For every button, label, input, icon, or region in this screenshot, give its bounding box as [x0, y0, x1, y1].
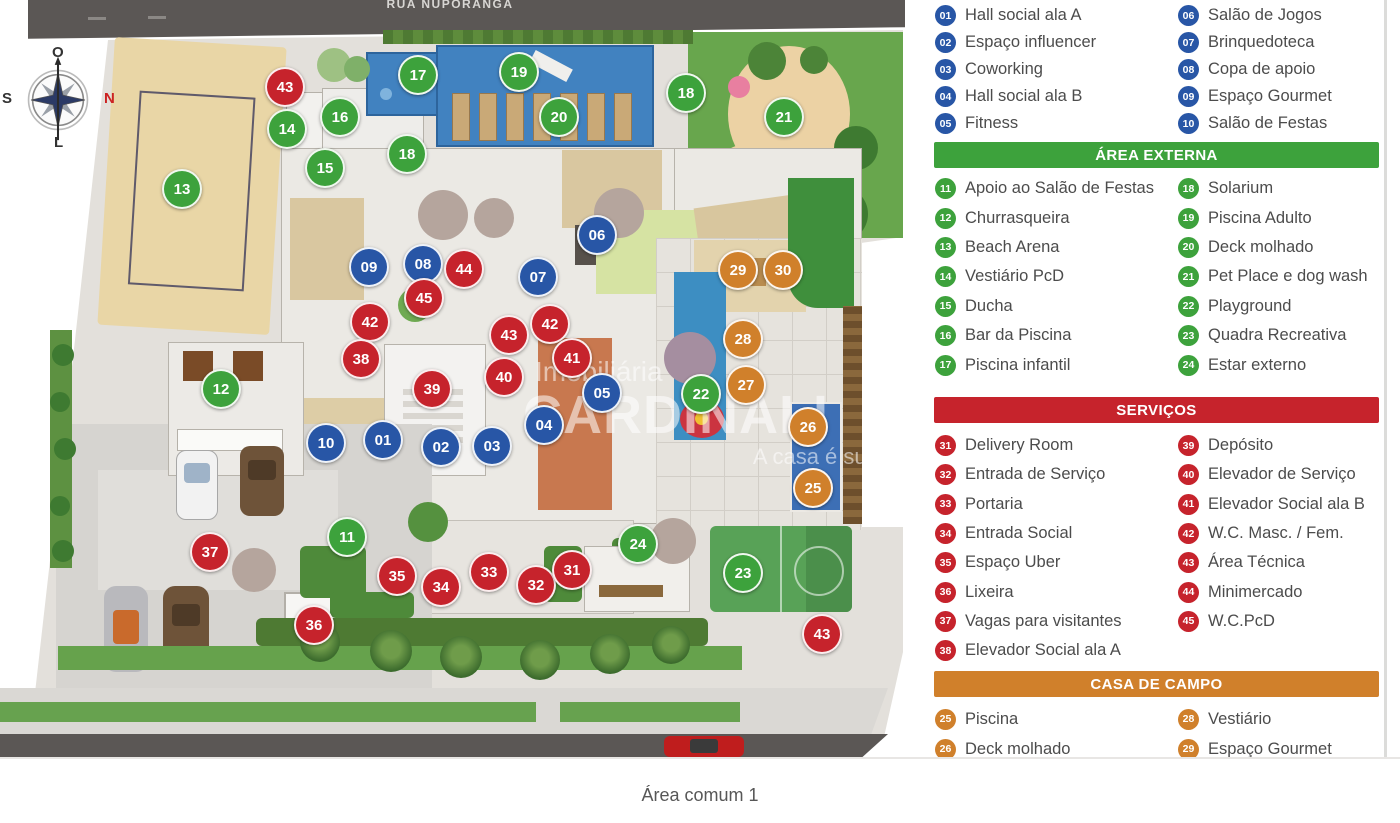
- legend-badge: 11: [935, 178, 956, 199]
- legend-label: Deck molhado: [1208, 238, 1313, 257]
- legend-item: 02 Espaço influencer: [935, 29, 1096, 56]
- legend-label: Hall social ala B: [965, 87, 1082, 106]
- legend-badge: 09: [1178, 86, 1199, 107]
- legend-badge: 40: [1178, 464, 1199, 485]
- section-header-area-externa: ÁREA EXTERNA: [934, 142, 1379, 168]
- legend-badge: 26: [935, 739, 956, 758]
- plan-marker: 19: [499, 52, 539, 92]
- plan-marker: 44: [444, 249, 484, 289]
- legend-label: Coworking: [965, 60, 1043, 79]
- legend-item: 45 W.C.PcD: [1178, 607, 1365, 636]
- legend-label: Estar externo: [1208, 356, 1306, 375]
- legend-badge: 22: [1178, 296, 1199, 317]
- legend-item: 14 Vestiário PcD: [935, 262, 1154, 291]
- image-caption: Área comum 1: [0, 759, 1400, 806]
- legend-badge: 35: [935, 552, 956, 573]
- legend-badge: 06: [1178, 5, 1199, 26]
- plan-marker: 14: [267, 109, 307, 149]
- legend-badge: 42: [1178, 523, 1199, 544]
- plan-marker: 28: [723, 319, 763, 359]
- plan-marker: 27: [726, 365, 766, 405]
- legend-badge: 08: [1178, 59, 1199, 80]
- legend-item: 26 Deck molhado: [935, 734, 1070, 757]
- plan-marker: 26: [788, 407, 828, 447]
- legend-social-left: 01 Hall social ala A 02 Espaço influence…: [935, 2, 1096, 137]
- section-header-servicos: SERVIÇOS: [934, 397, 1379, 423]
- plan-marker: 04: [524, 405, 564, 445]
- plan-marker: 41: [552, 338, 592, 378]
- legend-label: Apoio ao Salão de Festas: [965, 179, 1154, 198]
- legend-label: Hall social ala A: [965, 6, 1081, 25]
- legend-label: Entrada de Serviço: [965, 465, 1105, 484]
- site-plan-image: RUA NUPORANGA O S N L: [0, 0, 1400, 757]
- plan-marker: 12: [201, 369, 241, 409]
- legend-label: Brinquedoteca: [1208, 33, 1314, 52]
- legend-servicos-right: 39 Depósito 40 Elevador de Serviço 41 El…: [1178, 431, 1365, 636]
- legend-item: 34 Entrada Social: [935, 519, 1122, 548]
- legend-label: Bar da Piscina: [965, 326, 1071, 345]
- legend-badge: 15: [935, 296, 956, 317]
- plan-marker: 40: [484, 357, 524, 397]
- plan-marker: 34: [421, 567, 461, 607]
- plan-marker: 45: [404, 278, 444, 318]
- legend-panel: 01 Hall social ala A 02 Espaço influence…: [930, 0, 1386, 757]
- legend-badge: 03: [935, 59, 956, 80]
- legend-externa-left: 11 Apoio ao Salão de Festas 12 Churrasqu…: [935, 174, 1154, 380]
- legend-label: Elevador Social ala B: [1208, 495, 1365, 514]
- plan-marker: 42: [530, 304, 570, 344]
- legend-item: 19 Piscina Adulto: [1178, 203, 1368, 232]
- legend-badge: 33: [935, 494, 956, 515]
- legend-casa-right: 28 Vestiário 29 Espaço Gourmet: [1178, 704, 1332, 757]
- legend-badge: 31: [935, 435, 956, 456]
- legend-item: 42 W.C. Masc. / Fem.: [1178, 519, 1365, 548]
- legend-badge: 16: [935, 325, 956, 346]
- site-plan: RUA NUPORANGA O S N L: [0, 0, 930, 757]
- legend-badge: 28: [1178, 709, 1199, 730]
- legend-item: 20 Deck molhado: [1178, 233, 1368, 262]
- legend-label: Pet Place e dog wash: [1208, 267, 1368, 286]
- legend-label: W.C. Masc. / Fem.: [1208, 524, 1344, 543]
- plan-marker: 02: [421, 427, 461, 467]
- legend-badge: 01: [935, 5, 956, 26]
- legend-item: 28 Vestiário: [1178, 704, 1332, 734]
- legend-label: Delivery Room: [965, 436, 1073, 455]
- legend-badge: 05: [935, 113, 956, 134]
- legend-badge: 45: [1178, 611, 1199, 632]
- legend-label: Fitness: [965, 114, 1018, 133]
- legend-label: Depósito: [1208, 436, 1273, 455]
- legend-label: Lixeira: [965, 583, 1014, 602]
- legend-item: 36 Lixeira: [935, 577, 1122, 606]
- plan-marker: 42: [350, 302, 390, 342]
- legend-badge: 21: [1178, 266, 1199, 287]
- legend-badge: 37: [935, 611, 956, 632]
- plan-marker: 30: [763, 250, 803, 290]
- legend-label: Solarium: [1208, 179, 1273, 198]
- plan-marker: 07: [518, 257, 558, 297]
- plan-marker: 39: [412, 369, 452, 409]
- plan-marker: 43: [489, 315, 529, 355]
- legend-label: Vestiário PcD: [965, 267, 1064, 286]
- panel-edge-line: [1384, 0, 1387, 757]
- legend-badge: 23: [1178, 325, 1199, 346]
- caption-band: Área comum 1: [0, 757, 1400, 823]
- legend-item: 21 Pet Place e dog wash: [1178, 262, 1368, 291]
- plan-marker: 09: [349, 247, 389, 287]
- legend-item: 01 Hall social ala A: [935, 2, 1096, 29]
- plan-marker: 01: [363, 420, 403, 460]
- plan-marker: 18: [666, 73, 706, 113]
- legend-badge: 18: [1178, 178, 1199, 199]
- legend-label: Entrada Social: [965, 524, 1072, 543]
- legend-badge: 29: [1178, 739, 1199, 758]
- legend-item: 38 Elevador Social ala A: [935, 636, 1122, 665]
- legend-casa-left: 25 Piscina 26 Deck molhado: [935, 704, 1070, 757]
- legend-item: 44 Minimercado: [1178, 577, 1365, 606]
- plan-marker: 43: [265, 67, 305, 107]
- plan-marker: 37: [190, 532, 230, 572]
- legend-social-right: 06 Salão de Jogos 07 Brinquedoteca 08 Co…: [1178, 2, 1332, 137]
- legend-label: Salão de Festas: [1208, 114, 1327, 133]
- plan-marker: 13: [162, 169, 202, 209]
- plan-marker: 33: [469, 552, 509, 592]
- legend-item: 03 Coworking: [935, 56, 1096, 83]
- legend-label: Espaço influencer: [965, 33, 1096, 52]
- legend-item: 22 Playground: [1178, 292, 1368, 321]
- legend-item: 10 Salão de Festas: [1178, 110, 1332, 137]
- legend-item: 24 Estar externo: [1178, 350, 1368, 379]
- legend-item: 08 Copa de apoio: [1178, 56, 1332, 83]
- legend-badge: 25: [935, 709, 956, 730]
- legend-badge: 24: [1178, 355, 1199, 376]
- plan-marker: 17: [398, 55, 438, 95]
- legend-item: 05 Fitness: [935, 110, 1096, 137]
- legend-badge: 17: [935, 355, 956, 376]
- legend-label: Área Técnica: [1208, 553, 1305, 572]
- legend-item: 41 Elevador Social ala B: [1178, 490, 1365, 519]
- legend-label: Ducha: [965, 297, 1013, 316]
- plan-marker: 31: [552, 550, 592, 590]
- legend-label: Elevador Social ala A: [965, 641, 1121, 660]
- legend-label: Salão de Jogos: [1208, 6, 1322, 25]
- legend-item: 18 Solarium: [1178, 174, 1368, 203]
- legend-badge: 44: [1178, 582, 1199, 603]
- legend-badge: 02: [935, 32, 956, 53]
- legend-label: Quadra Recreativa: [1208, 326, 1347, 345]
- legend-item: 07 Brinquedoteca: [1178, 29, 1332, 56]
- legend-item: 15 Ducha: [935, 292, 1154, 321]
- legend-item: 37 Vagas para visitantes: [935, 607, 1122, 636]
- legend-badge: 14: [935, 266, 956, 287]
- plan-marker: 23: [723, 553, 763, 593]
- legend-item: 40 Elevador de Serviço: [1178, 460, 1365, 489]
- legend-badge: 41: [1178, 494, 1199, 515]
- legend-label: Minimercado: [1208, 583, 1302, 602]
- screenshot: RUA NUPORANGA O S N L: [0, 0, 1400, 823]
- legend-badge: 12: [935, 208, 956, 229]
- legend-item: 06 Salão de Jogos: [1178, 2, 1332, 29]
- section-header-casa-de-campo: CASA DE CAMPO: [934, 671, 1379, 697]
- legend-badge: 07: [1178, 32, 1199, 53]
- plan-marker: 18: [387, 134, 427, 174]
- plan-marker: 03: [472, 426, 512, 466]
- legend-item: 17 Piscina infantil: [935, 350, 1154, 379]
- legend-label: Piscina: [965, 710, 1018, 729]
- plan-marker: 05: [582, 373, 622, 413]
- legend-label: Piscina Adulto: [1208, 209, 1312, 228]
- legend-badge: 38: [935, 640, 956, 661]
- plan-marker: 36: [294, 605, 334, 645]
- legend-badge: 32: [935, 464, 956, 485]
- plan-marker: 35: [377, 556, 417, 596]
- legend-item: 12 Churrasqueira: [935, 203, 1154, 232]
- legend-item: 43 Área Técnica: [1178, 548, 1365, 577]
- legend-badge: 19: [1178, 208, 1199, 229]
- legend-badge: 36: [935, 582, 956, 603]
- legend-item: 25 Piscina: [935, 704, 1070, 734]
- legend-badge: 20: [1178, 237, 1199, 258]
- plan-marker: 10: [306, 423, 346, 463]
- legend-label: Deck molhado: [965, 740, 1070, 758]
- plan-marker: 32: [516, 565, 556, 605]
- legend-item: 13 Beach Arena: [935, 233, 1154, 262]
- legend-item: 11 Apoio ao Salão de Festas: [935, 174, 1154, 203]
- legend-badge: 13: [935, 237, 956, 258]
- legend-label: Vestiário: [1208, 710, 1271, 729]
- legend-badge: 34: [935, 523, 956, 544]
- legend-label: Beach Arena: [965, 238, 1060, 257]
- legend-item: 04 Hall social ala B: [935, 83, 1096, 110]
- plan-marker: 43: [802, 614, 842, 654]
- legend-item: 29 Espaço Gourmet: [1178, 734, 1332, 757]
- plan-marker: 06: [577, 215, 617, 255]
- plan-marker: 21: [764, 97, 804, 137]
- legend-label: Portaria: [965, 495, 1023, 514]
- legend-item: 09 Espaço Gourmet: [1178, 83, 1332, 110]
- plan-marker: 22: [681, 374, 721, 414]
- legend-externa-right: 18 Solarium 19 Piscina Adulto 20 Deck mo…: [1178, 174, 1368, 380]
- plan-marker: 20: [539, 97, 579, 137]
- legend-label: Playground: [1208, 297, 1291, 316]
- legend-item: 16 Bar da Piscina: [935, 321, 1154, 350]
- legend-label: Elevador de Serviço: [1208, 465, 1356, 484]
- plan-marker: 16: [320, 97, 360, 137]
- legend-item: 32 Entrada de Serviço: [935, 460, 1122, 489]
- legend-badge: 43: [1178, 552, 1199, 573]
- plan-marker: 11: [327, 517, 367, 557]
- legend-item: 23 Quadra Recreativa: [1178, 321, 1368, 350]
- legend-badge: 39: [1178, 435, 1199, 456]
- plan-marker: 24: [618, 524, 658, 564]
- legend-label: Vagas para visitantes: [965, 612, 1122, 631]
- legend-label: Espaço Gourmet: [1208, 87, 1332, 106]
- legend-label: Espaço Uber: [965, 553, 1060, 572]
- plan-marker: 38: [341, 339, 381, 379]
- legend-label: W.C.PcD: [1208, 612, 1275, 631]
- legend-item: 31 Delivery Room: [935, 431, 1122, 460]
- plan-marker: 29: [718, 250, 758, 290]
- legend-label: Copa de apoio: [1208, 60, 1315, 79]
- legend-badge: 10: [1178, 113, 1199, 134]
- legend-item: 35 Espaço Uber: [935, 548, 1122, 577]
- legend-badge: 04: [935, 86, 956, 107]
- legend-label: Churrasqueira: [965, 209, 1070, 228]
- legend-item: 33 Portaria: [935, 490, 1122, 519]
- plan-marker: 25: [793, 468, 833, 508]
- legend-label: Piscina infantil: [965, 356, 1070, 375]
- plan-marker: 15: [305, 148, 345, 188]
- plan-markers: 43 14 16 15 17 19 20 18 18 21: [0, 0, 930, 757]
- legend-item: 39 Depósito: [1178, 431, 1365, 460]
- legend-label: Espaço Gourmet: [1208, 740, 1332, 758]
- legend-servicos-left: 31 Delivery Room 32 Entrada de Serviço 3…: [935, 431, 1122, 665]
